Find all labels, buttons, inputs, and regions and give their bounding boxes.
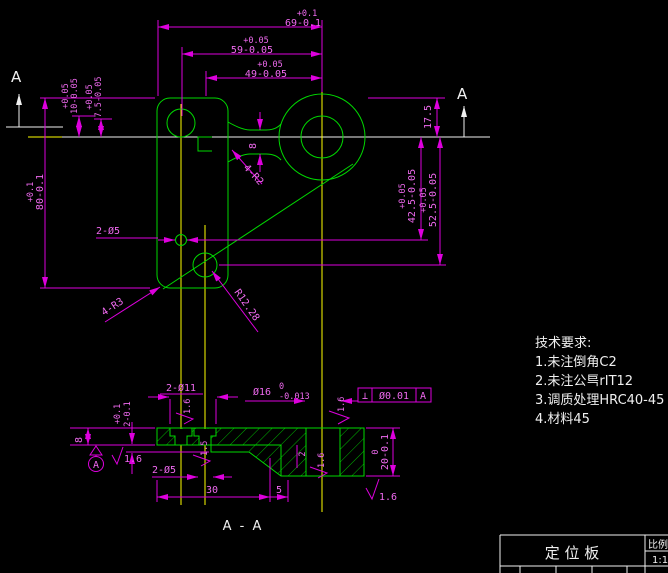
roughness-datum-area: 1.6 bbox=[112, 447, 142, 465]
label-2xd5-main: 2-Ø5 bbox=[96, 225, 120, 237]
dim-49-val: 49-0.05 bbox=[245, 69, 287, 80]
dim-42-5-val: 42.5-0.05 bbox=[407, 169, 418, 223]
roughness-chamfer-value: 1.6 bbox=[317, 453, 327, 468]
dim-5-val: 5 bbox=[276, 485, 282, 496]
dim-thickness-20: 0 20-0.1 bbox=[366, 428, 400, 476]
roughness-bottom-value: 1.6 bbox=[379, 492, 397, 503]
tech-req-heading: 技术要求: bbox=[535, 336, 591, 351]
callout-r12-28: R12.28 bbox=[212, 271, 261, 332]
datum-letter: A bbox=[93, 460, 99, 471]
roughness-chamfer: 1.6 bbox=[310, 453, 327, 478]
technical-requirements: 技术要求: 1.未注倒角C2 2.未注公巪rIT12 3.调质处理HRC40-4… bbox=[535, 336, 664, 427]
dim-59-val: 59-0.05 bbox=[231, 45, 273, 56]
dim-thickness-8: 8 bbox=[70, 428, 155, 445]
dim-69-val: 69-0.1 bbox=[285, 18, 321, 29]
dim-7-5-val: 7.5-0.05 bbox=[94, 77, 104, 118]
roughness-top-right: 1.6 bbox=[329, 397, 349, 424]
roughness-top-left: 1.6 bbox=[176, 399, 193, 424]
section-view: 2-Ø11 Ø16 0 -0.013 ⊥ Ø0.01 A bbox=[70, 382, 431, 534]
title-block-scale-value: 1:1 bbox=[652, 555, 668, 566]
dim-bore-val: Ø16 bbox=[253, 386, 271, 398]
tech-req-item-4: 4.材料45 bbox=[535, 412, 590, 427]
dim-20-val: 20-0.1 bbox=[380, 434, 391, 470]
title-block-part-name: 定 位 板 bbox=[545, 544, 600, 562]
dim-step2-tol: +0.1 bbox=[113, 404, 123, 424]
datum-symbol: A bbox=[89, 446, 104, 472]
feature-control-frame: ⊥ Ø0.01 A bbox=[358, 388, 431, 402]
title-block: 定 位 板 比例 1:1 bbox=[500, 535, 668, 573]
dim-7-5: +0.05 7.5-0.05 bbox=[85, 77, 112, 137]
dim-30-val: 30 bbox=[206, 485, 218, 496]
dim-8-val: 8 bbox=[74, 437, 85, 443]
cad-drawing-canvas: A A +0.1 69-0.1 +0.05 59-0.05 +0.05 bbox=[0, 0, 668, 573]
callout-2xd5-section: 2-Ø5 bbox=[152, 464, 232, 477]
dim-52-5-val: 52.5-0.05 bbox=[428, 173, 439, 227]
roughness-top-left-value: 1.6 bbox=[183, 399, 193, 414]
label-2xd5-section: 2-Ø5 bbox=[152, 464, 176, 476]
main-view: A A +0.1 69-0.1 +0.05 59-0.05 +0.05 bbox=[6, 9, 480, 332]
section-letter-left: A bbox=[11, 68, 22, 86]
dim-17-5: 17.5 bbox=[368, 98, 445, 137]
engineering-drawing: A A +0.1 69-0.1 +0.05 59-0.05 +0.05 bbox=[0, 0, 668, 573]
tech-req-item-2: 2.未注公巪rIT12 bbox=[535, 374, 633, 389]
tech-req-item-1: 1.未注倒角C2 bbox=[535, 355, 617, 370]
roughness-datum-value: 1.6 bbox=[124, 454, 142, 465]
dim-49: +0.05 49-0.05 bbox=[206, 60, 322, 96]
dim-chamfer-2-val: 2 bbox=[298, 451, 308, 456]
label-r12-28: R12.28 bbox=[232, 287, 262, 323]
fcf-symbol: ⊥ bbox=[362, 391, 368, 402]
dim-neck-8-val: 8 bbox=[248, 143, 259, 149]
neck-top-edge bbox=[228, 122, 281, 130]
dim-42-5: +0.05 42.5-0.05 bbox=[190, 137, 428, 240]
dim-17-5-val: 17.5 bbox=[423, 105, 434, 129]
roughness-top-right-value: 1.6 bbox=[337, 397, 347, 412]
callout-4r3: 4-R3 bbox=[100, 287, 160, 322]
roughness-hole-value: 1.5 bbox=[200, 441, 210, 456]
section-view-label: A - A bbox=[223, 519, 264, 534]
dim-step2-val: 2-0.1 bbox=[123, 401, 133, 427]
label-2xd11: 2-Ø11 bbox=[166, 382, 196, 394]
dim-80-val: 80-0.1 bbox=[35, 174, 46, 210]
dim-10-val: 10-0.05 bbox=[70, 78, 80, 114]
tech-req-item-3: 3.调质处理HRC40-45 bbox=[535, 393, 664, 408]
fcf-datum: A bbox=[420, 391, 426, 402]
dim-bore-upper: 0 bbox=[279, 382, 284, 392]
roughness-bottom: 1.6 bbox=[366, 479, 397, 503]
fcf-tolerance: Ø0.01 bbox=[379, 390, 409, 402]
edge-notch bbox=[198, 137, 212, 151]
callout-2xd5-main: 2-Ø5 bbox=[96, 225, 204, 240]
plate-outline bbox=[157, 94, 365, 289]
dim-2xd11: 2-Ø11 bbox=[148, 382, 238, 424]
section-cut-marker-right: A bbox=[447, 85, 480, 137]
dim-80: +0.1 80-0.1 bbox=[26, 98, 155, 288]
title-block-scale-label: 比例 bbox=[648, 538, 668, 551]
section-letter-right: A bbox=[457, 85, 468, 103]
label-4r3: 4-R3 bbox=[100, 296, 126, 318]
